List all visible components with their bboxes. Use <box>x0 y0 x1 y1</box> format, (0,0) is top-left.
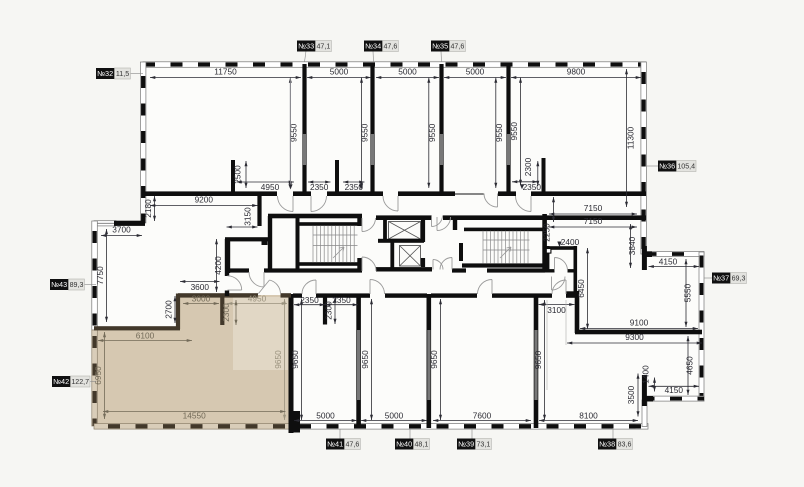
svg-text:6950: 6950 <box>93 366 103 385</box>
svg-text:47,6: 47,6 <box>383 43 397 51</box>
svg-text:9550: 9550 <box>289 123 299 142</box>
svg-text:№41: №41 <box>327 440 343 449</box>
svg-text:6100: 6100 <box>136 331 155 341</box>
svg-text:№32: №32 <box>97 69 113 78</box>
svg-text:4950: 4950 <box>261 182 280 192</box>
svg-text:122,7: 122,7 <box>71 378 89 386</box>
svg-text:№43: №43 <box>51 280 67 289</box>
svg-text:9300: 9300 <box>625 332 644 342</box>
svg-text:4950: 4950 <box>248 294 267 304</box>
svg-text:2180: 2180 <box>143 199 153 218</box>
svg-text:3100: 3100 <box>547 305 566 315</box>
svg-text:4650: 4650 <box>685 356 695 375</box>
svg-text:№39: №39 <box>458 440 474 449</box>
svg-text:8100: 8100 <box>579 411 598 421</box>
svg-text:3500: 3500 <box>626 385 636 404</box>
svg-text:9650: 9650 <box>290 350 300 369</box>
svg-text:№33: №33 <box>298 42 314 51</box>
svg-text:7600: 7600 <box>473 411 492 421</box>
svg-text:№40: №40 <box>396 440 412 449</box>
svg-text:9650: 9650 <box>533 350 543 369</box>
svg-text:№35: №35 <box>432 42 448 51</box>
svg-text:47,6: 47,6 <box>345 441 359 449</box>
svg-text:2400: 2400 <box>561 237 580 247</box>
svg-text:3000: 3000 <box>192 294 211 304</box>
svg-text:№34: №34 <box>365 42 381 51</box>
svg-text:2350: 2350 <box>523 182 542 192</box>
svg-text:9200: 9200 <box>195 195 214 205</box>
svg-text:89,3: 89,3 <box>70 281 84 289</box>
svg-text:11300: 11300 <box>626 126 636 149</box>
svg-text:2300: 2300 <box>324 301 334 320</box>
svg-text:14550: 14550 <box>183 410 206 420</box>
svg-text:9550: 9550 <box>509 122 519 141</box>
svg-text:№42: №42 <box>53 377 69 386</box>
svg-text:7750: 7750 <box>95 266 105 285</box>
svg-text:7150: 7150 <box>584 216 603 226</box>
svg-text:5550: 5550 <box>683 283 693 302</box>
svg-text:11,5: 11,5 <box>116 70 129 78</box>
svg-text:47,6: 47,6 <box>450 43 464 51</box>
svg-text:73,1: 73,1 <box>476 441 490 449</box>
svg-text:2250: 2250 <box>542 223 552 242</box>
svg-text:9800: 9800 <box>567 67 586 77</box>
svg-text:3840: 3840 <box>627 236 637 255</box>
svg-text:3600: 3600 <box>191 282 210 292</box>
svg-text:5000: 5000 <box>398 67 417 77</box>
svg-text:9550: 9550 <box>360 123 370 142</box>
svg-text:1400: 1400 <box>641 365 651 384</box>
svg-text:5000: 5000 <box>316 411 335 421</box>
svg-text:9650: 9650 <box>429 350 439 369</box>
svg-text:№37: №37 <box>713 274 729 283</box>
svg-text:9650: 9650 <box>360 350 370 369</box>
svg-text:5000: 5000 <box>330 67 349 77</box>
svg-text:2300: 2300 <box>523 157 533 176</box>
svg-text:9650: 9650 <box>273 350 283 369</box>
svg-text:5000: 5000 <box>385 411 404 421</box>
svg-text:9100: 9100 <box>630 318 649 328</box>
svg-text:48,1: 48,1 <box>414 441 428 449</box>
svg-text:3150: 3150 <box>243 207 253 226</box>
svg-text:4150: 4150 <box>659 256 678 266</box>
svg-text:№38: №38 <box>599 440 615 449</box>
svg-text:№36: №36 <box>659 162 675 171</box>
svg-text:4200: 4200 <box>213 256 223 275</box>
svg-text:3700: 3700 <box>112 225 131 235</box>
svg-text:69,3: 69,3 <box>732 275 746 283</box>
svg-text:4150: 4150 <box>665 385 684 395</box>
svg-text:6450: 6450 <box>576 279 586 298</box>
svg-text:2350: 2350 <box>310 182 329 192</box>
svg-text:9550: 9550 <box>427 123 437 142</box>
svg-text:9550: 9550 <box>494 123 504 142</box>
svg-text:2700: 2700 <box>164 300 174 319</box>
svg-text:47,1: 47,1 <box>316 43 330 51</box>
svg-text:2350: 2350 <box>300 295 319 305</box>
svg-text:7150: 7150 <box>584 203 603 213</box>
svg-text:11750: 11750 <box>214 67 237 77</box>
svg-text:5000: 5000 <box>466 67 485 77</box>
svg-text:2300: 2300 <box>221 303 231 322</box>
svg-text:105,4: 105,4 <box>677 163 695 171</box>
svg-text:83,6: 83,6 <box>618 441 632 449</box>
